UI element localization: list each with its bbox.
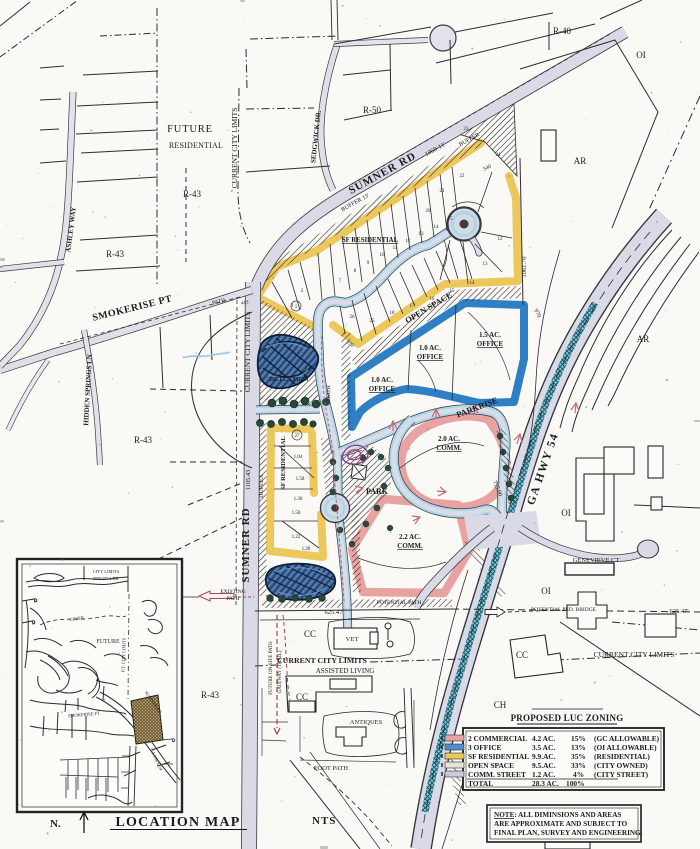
svg-text:33%: 33% (571, 761, 586, 770)
svg-text:OPEN SPACE: OPEN SPACE (468, 761, 514, 770)
svg-text:CC: CC (516, 650, 528, 660)
svg-text:28.3 AC.: 28.3 AC. (532, 779, 559, 788)
svg-text:FINAL PLAN, SURVEY AND ENGINEE: FINAL PLAN, SURVEY AND ENGINEERING. (494, 829, 643, 837)
svg-text:SF RESIDENTIAL: SF RESIDENTIAL (468, 752, 529, 761)
svg-text:1061.70: 1061.70 (521, 256, 528, 277)
svg-text:CURRENT CITY LIMITS: CURRENT CITY LIMITS (277, 656, 367, 665)
svg-text:(RESIDENTIAL): (RESIDENTIAL) (594, 752, 650, 761)
svg-text:VET: VET (346, 636, 359, 643)
svg-text:COMM.: COMM. (397, 542, 423, 550)
svg-text:R-43: R-43 (201, 690, 220, 700)
svg-text:BRENDA DR: BRENDA DR (93, 576, 119, 581)
svg-text:R-43: R-43 (106, 249, 125, 259)
svg-text:SUMNER RD: SUMNER RD (240, 507, 252, 582)
svg-text:OI: OI (636, 50, 646, 60)
svg-text:R-43: R-43 (183, 189, 202, 199)
svg-text:1.58: 1.58 (296, 477, 305, 482)
svg-text:CC: CC (296, 692, 308, 702)
svg-text:1.2 AC.: 1.2 AC. (532, 770, 555, 779)
svg-text:SF RESIDENTIAL: SF RESIDENTIAL (342, 237, 399, 244)
svg-text:12: 12 (406, 239, 412, 244)
svg-text:AR: AR (574, 156, 587, 166)
svg-text:OI: OI (561, 508, 571, 518)
svg-text:2.0 AC.: 2.0 AC. (438, 435, 460, 443)
svg-text:18: 18 (390, 311, 396, 316)
svg-text:GATEWAY (TRAIL): GATEWAY (TRAIL) (278, 650, 283, 693)
svg-text:15: 15 (450, 289, 456, 294)
svg-text:N.: N. (50, 818, 61, 830)
svg-text:CC: CC (304, 629, 316, 639)
svg-text:1105.43: 1105.43 (245, 470, 252, 491)
svg-text:14: 14 (434, 225, 440, 230)
svg-text:27: 27 (295, 434, 301, 439)
svg-text:PATH: PATH (226, 596, 239, 602)
svg-text:9.9.AC.: 9.9.AC. (532, 752, 556, 761)
svg-text:15%: 15% (571, 734, 586, 743)
svg-text:NOTE: ALL DIMINSIONS AND AREA: NOTE: ALL DIMINSIONS AND AREAS (494, 811, 621, 819)
svg-text:COMM.: COMM. (436, 444, 462, 452)
svg-text:2 COMMERCIAL: 2 COMMERCIAL (468, 734, 527, 743)
svg-text:R-50: R-50 (363, 105, 382, 115)
svg-text:OI: OI (541, 586, 551, 596)
svg-text:24: 24 (496, 153, 502, 158)
svg-text:CURRENT CITY LIMITS: CURRENT CITY LIMITS (243, 312, 252, 393)
svg-text:(OI ALLOWABLE): (OI ALLOWABLE) (594, 743, 657, 752)
svg-text:CITY LIMITS: CITY LIMITS (93, 569, 120, 574)
svg-text:OFFICE: OFFICE (417, 353, 444, 361)
svg-text:CURRENT CITY LIMITS: CURRENT CITY LIMITS (230, 108, 239, 189)
svg-text:CURRENT CITY LIMITS: CURRENT CITY LIMITS (594, 650, 675, 659)
svg-text:17: 17 (410, 304, 416, 309)
svg-text:1.50: 1.50 (292, 511, 301, 516)
svg-text:TOTAL: TOTAL (468, 779, 493, 788)
svg-text:16: 16 (430, 297, 436, 302)
svg-text:FOOT PATH: FOOT PATH (314, 765, 348, 772)
svg-text:15: 15 (448, 217, 454, 222)
svg-text:12: 12 (498, 237, 504, 242)
svg-text:POTENTIAL PED. BRIDGE: POTENTIAL PED. BRIDGE (531, 607, 597, 613)
svg-text:CH: CH (494, 700, 507, 710)
svg-text:PROPOSED LUC ZONING: PROPOSED LUC ZONING (511, 713, 624, 723)
svg-text:11: 11 (393, 246, 398, 251)
svg-text:1.5 AC.: 1.5 AC. (479, 331, 501, 339)
svg-text:(CITY STREET): (CITY STREET) (594, 770, 649, 779)
svg-text:1.0 AC.: 1.0 AC. (371, 376, 393, 384)
svg-text:ANTIQUES: ANTIQUES (350, 719, 383, 726)
svg-text:4.2 AC.: 4.2 AC. (532, 734, 555, 743)
svg-text:25: 25 (370, 319, 376, 324)
svg-text:100%: 100% (566, 779, 584, 788)
svg-text:23: 23 (464, 127, 470, 132)
svg-text:DUPLEX: DUPLEX (259, 474, 265, 498)
svg-text:OFFICE: OFFICE (369, 385, 396, 393)
svg-text:FUTURE: FUTURE (167, 124, 213, 135)
svg-text:ASSISTED LIVING: ASSISTED LIVING (316, 667, 375, 675)
svg-text:ARE APPROXIMATE AND SUBJECT TO: ARE APPROXIMATE AND SUBJECT TO (494, 820, 628, 828)
svg-text:13: 13 (483, 262, 489, 267)
svg-text:1.28: 1.28 (302, 547, 311, 552)
svg-text:1.0 AC.: 1.0 AC. (419, 344, 441, 352)
svg-text:35%: 35% (571, 752, 586, 761)
svg-text:13: 13 (419, 232, 425, 237)
svg-text:SF RESIDENTIAL: SF RESIDENTIAL (280, 435, 287, 489)
svg-text:OFFICE: OFFICE (477, 340, 504, 348)
svg-text:14: 14 (470, 281, 476, 286)
svg-text:3.5 AC.: 3.5 AC. (532, 743, 555, 752)
svg-text:22: 22 (460, 174, 466, 179)
svg-text:AR: AR (637, 334, 650, 344)
svg-text:PARK: PARK (366, 487, 389, 496)
svg-text:625.47': 625.47' (324, 609, 343, 616)
svg-text:1.22: 1.22 (292, 535, 301, 540)
svg-text:9.5.AC.: 9.5.AC. (532, 761, 556, 770)
svg-text:13%: 13% (571, 743, 586, 752)
svg-text:POTENTIAL PATH: POTENTIAL PATH (377, 600, 422, 606)
svg-text:R-43: R-43 (134, 435, 153, 445)
svg-text:NTS: NTS (312, 815, 336, 827)
svg-text:R-40: R-40 (553, 26, 572, 36)
svg-text:10: 10 (380, 253, 386, 258)
svg-text:(GC ALLOWABLE): (GC ALLOWABLE) (594, 734, 660, 743)
svg-text:FUTURE: FUTURE (96, 639, 120, 645)
svg-text:EXISTING: EXISTING (220, 589, 245, 595)
svg-text:DETENTION: DETENTION (269, 376, 308, 383)
svg-text:26: 26 (350, 315, 356, 320)
svg-text:21: 21 (440, 189, 446, 194)
svg-text:625.47': 625.47' (669, 608, 688, 615)
svg-text:GENEVIEVE CT: GENEVIEVE CT (573, 557, 620, 564)
svg-text:3 OFFICE: 3 OFFICE (468, 743, 502, 752)
svg-text:1.04: 1.04 (294, 455, 303, 460)
svg-text:20: 20 (426, 209, 432, 214)
svg-text:LOCATION MAP: LOCATION MAP (116, 815, 241, 830)
svg-text:(CITY OWNED): (CITY OWNED) (594, 761, 648, 770)
svg-text:2.2 AC.: 2.2 AC. (399, 533, 421, 541)
svg-text:1.36: 1.36 (294, 497, 303, 502)
svg-text:COMM. STREET: COMM. STREET (468, 770, 526, 779)
svg-text:4%: 4% (573, 770, 584, 779)
svg-text:RESIDENTIAL: RESIDENTIAL (169, 141, 223, 150)
svg-text:FUTURE ON-SITE PATH: FUTURE ON-SITE PATH (269, 641, 274, 695)
svg-text:PATH: PATH (326, 385, 332, 398)
